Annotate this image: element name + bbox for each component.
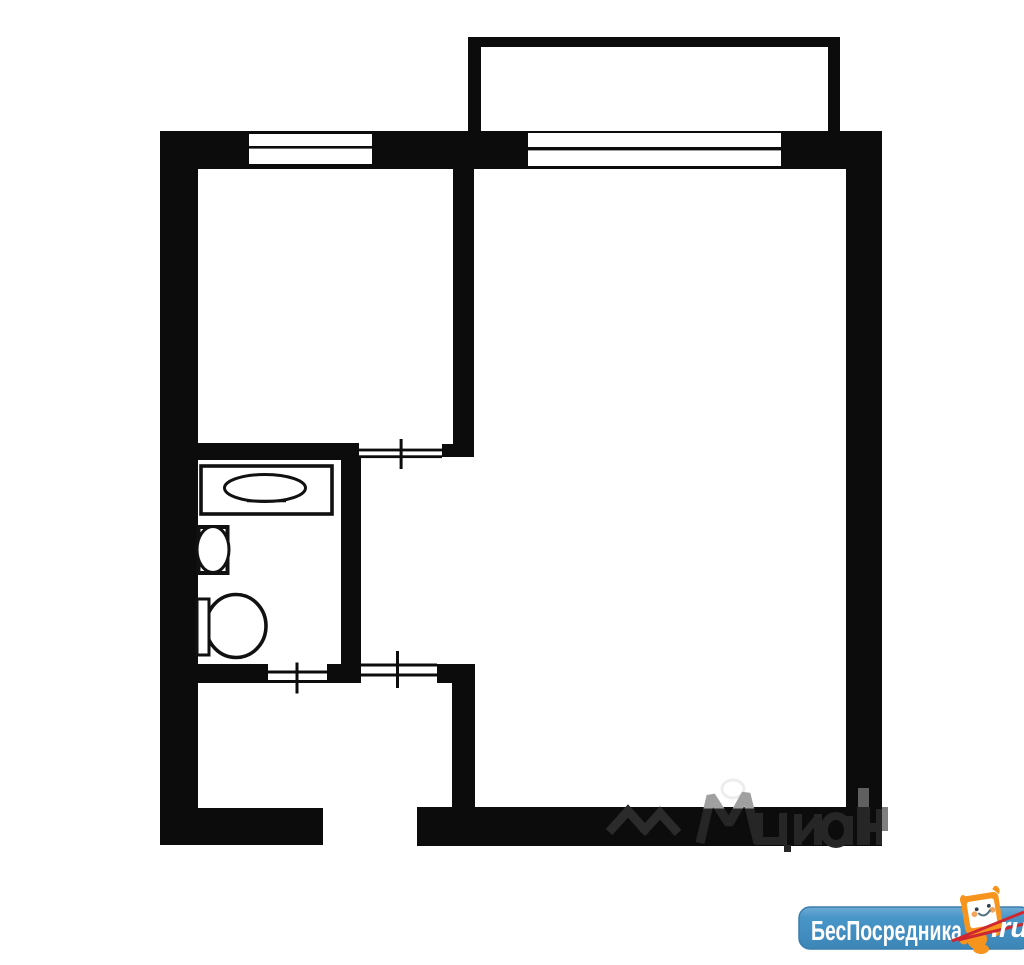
- svg-text:БесПосредника: БесПосредника: [811, 915, 962, 946]
- svg-text:.ru: .ru: [991, 912, 1024, 944]
